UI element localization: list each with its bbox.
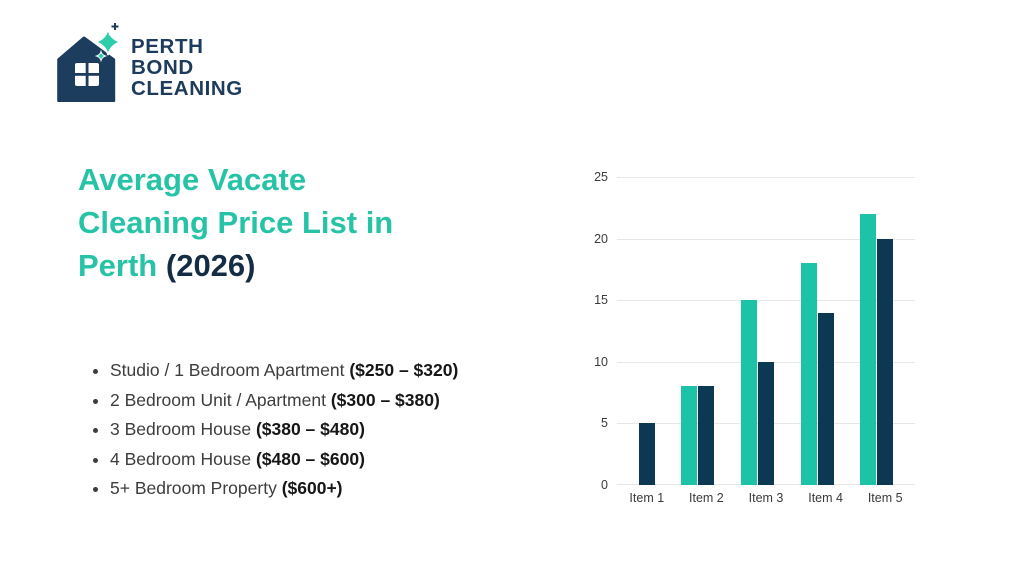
item-label: Studio / 1 Bedroom Apartment	[110, 360, 344, 380]
title-city: Perth	[78, 248, 157, 283]
price-list-item: 4 Bedroom House ($480 – $600)	[110, 445, 458, 475]
bar-series-a	[681, 386, 697, 485]
price-list-item: 5+ Bedroom Property ($600+)	[110, 474, 458, 504]
bar-chart: 0510152025Item 1Item 2Item 3Item 4Item 5	[617, 177, 915, 485]
title-line-3: Perth (2026)	[78, 244, 393, 287]
x-axis-tick-label: Item 3	[749, 491, 784, 505]
price-list-item: Studio / 1 Bedroom Apartment ($250 – $32…	[110, 356, 458, 386]
item-price: ($300 – $380)	[331, 390, 440, 410]
price-list-item: 3 Bedroom House ($380 – $480)	[110, 415, 458, 445]
price-list-item: 2 Bedroom Unit / Apartment ($300 – $380)	[110, 386, 458, 416]
price-list: Studio / 1 Bedroom Apartment ($250 – $32…	[86, 356, 458, 504]
item-label: 3 Bedroom House	[110, 419, 251, 439]
gridline	[617, 177, 915, 178]
y-axis-tick-label: 20	[568, 231, 608, 247]
y-axis-tick-label: 0	[568, 477, 608, 493]
bar-series-a	[741, 300, 757, 485]
bar-series-a	[801, 263, 817, 485]
infographic-page: PERTH BOND CLEANING Average Vacate Clean…	[0, 0, 1024, 576]
title-line-2: Cleaning Price List in	[78, 201, 393, 244]
logo-text-line-3: CLEANING	[131, 78, 243, 99]
logo-wordmark: PERTH BOND CLEANING	[131, 36, 243, 99]
item-price: ($480 – $600)	[256, 449, 365, 469]
bar-series-b	[877, 239, 893, 485]
item-price: ($600+)	[282, 478, 343, 498]
bar-series-a	[860, 214, 876, 485]
page-title: Average Vacate Cleaning Price List in Pe…	[78, 158, 393, 287]
item-label: 2 Bedroom Unit / Apartment	[110, 390, 326, 410]
title-line-1: Average Vacate	[78, 158, 393, 201]
x-axis-tick-label: Item 1	[629, 491, 664, 505]
x-axis-tick-label: Item 2	[689, 491, 724, 505]
item-label: 4 Bedroom House	[110, 449, 251, 469]
logo: PERTH BOND CLEANING	[56, 22, 243, 102]
bar-series-b	[639, 423, 655, 485]
house-icon	[56, 22, 126, 102]
y-axis-tick-label: 10	[568, 354, 608, 370]
logo-text-line-2: BOND	[131, 57, 243, 78]
x-axis-tick-label: Item 5	[868, 491, 903, 505]
bar-series-b	[818, 313, 834, 485]
y-axis-tick-label: 5	[568, 415, 608, 431]
item-price: ($380 – $480)	[256, 419, 365, 439]
y-axis-tick-label: 15	[568, 292, 608, 308]
bar-series-b	[758, 362, 774, 485]
item-label: 5+ Bedroom Property	[110, 478, 277, 498]
logo-text-line-1: PERTH	[131, 36, 243, 57]
x-axis-tick-label: Item 4	[808, 491, 843, 505]
title-year: (2026)	[166, 248, 256, 283]
y-axis-tick-label: 25	[568, 169, 608, 185]
item-price: ($250 – $320)	[349, 360, 458, 380]
bar-series-b	[698, 386, 714, 485]
